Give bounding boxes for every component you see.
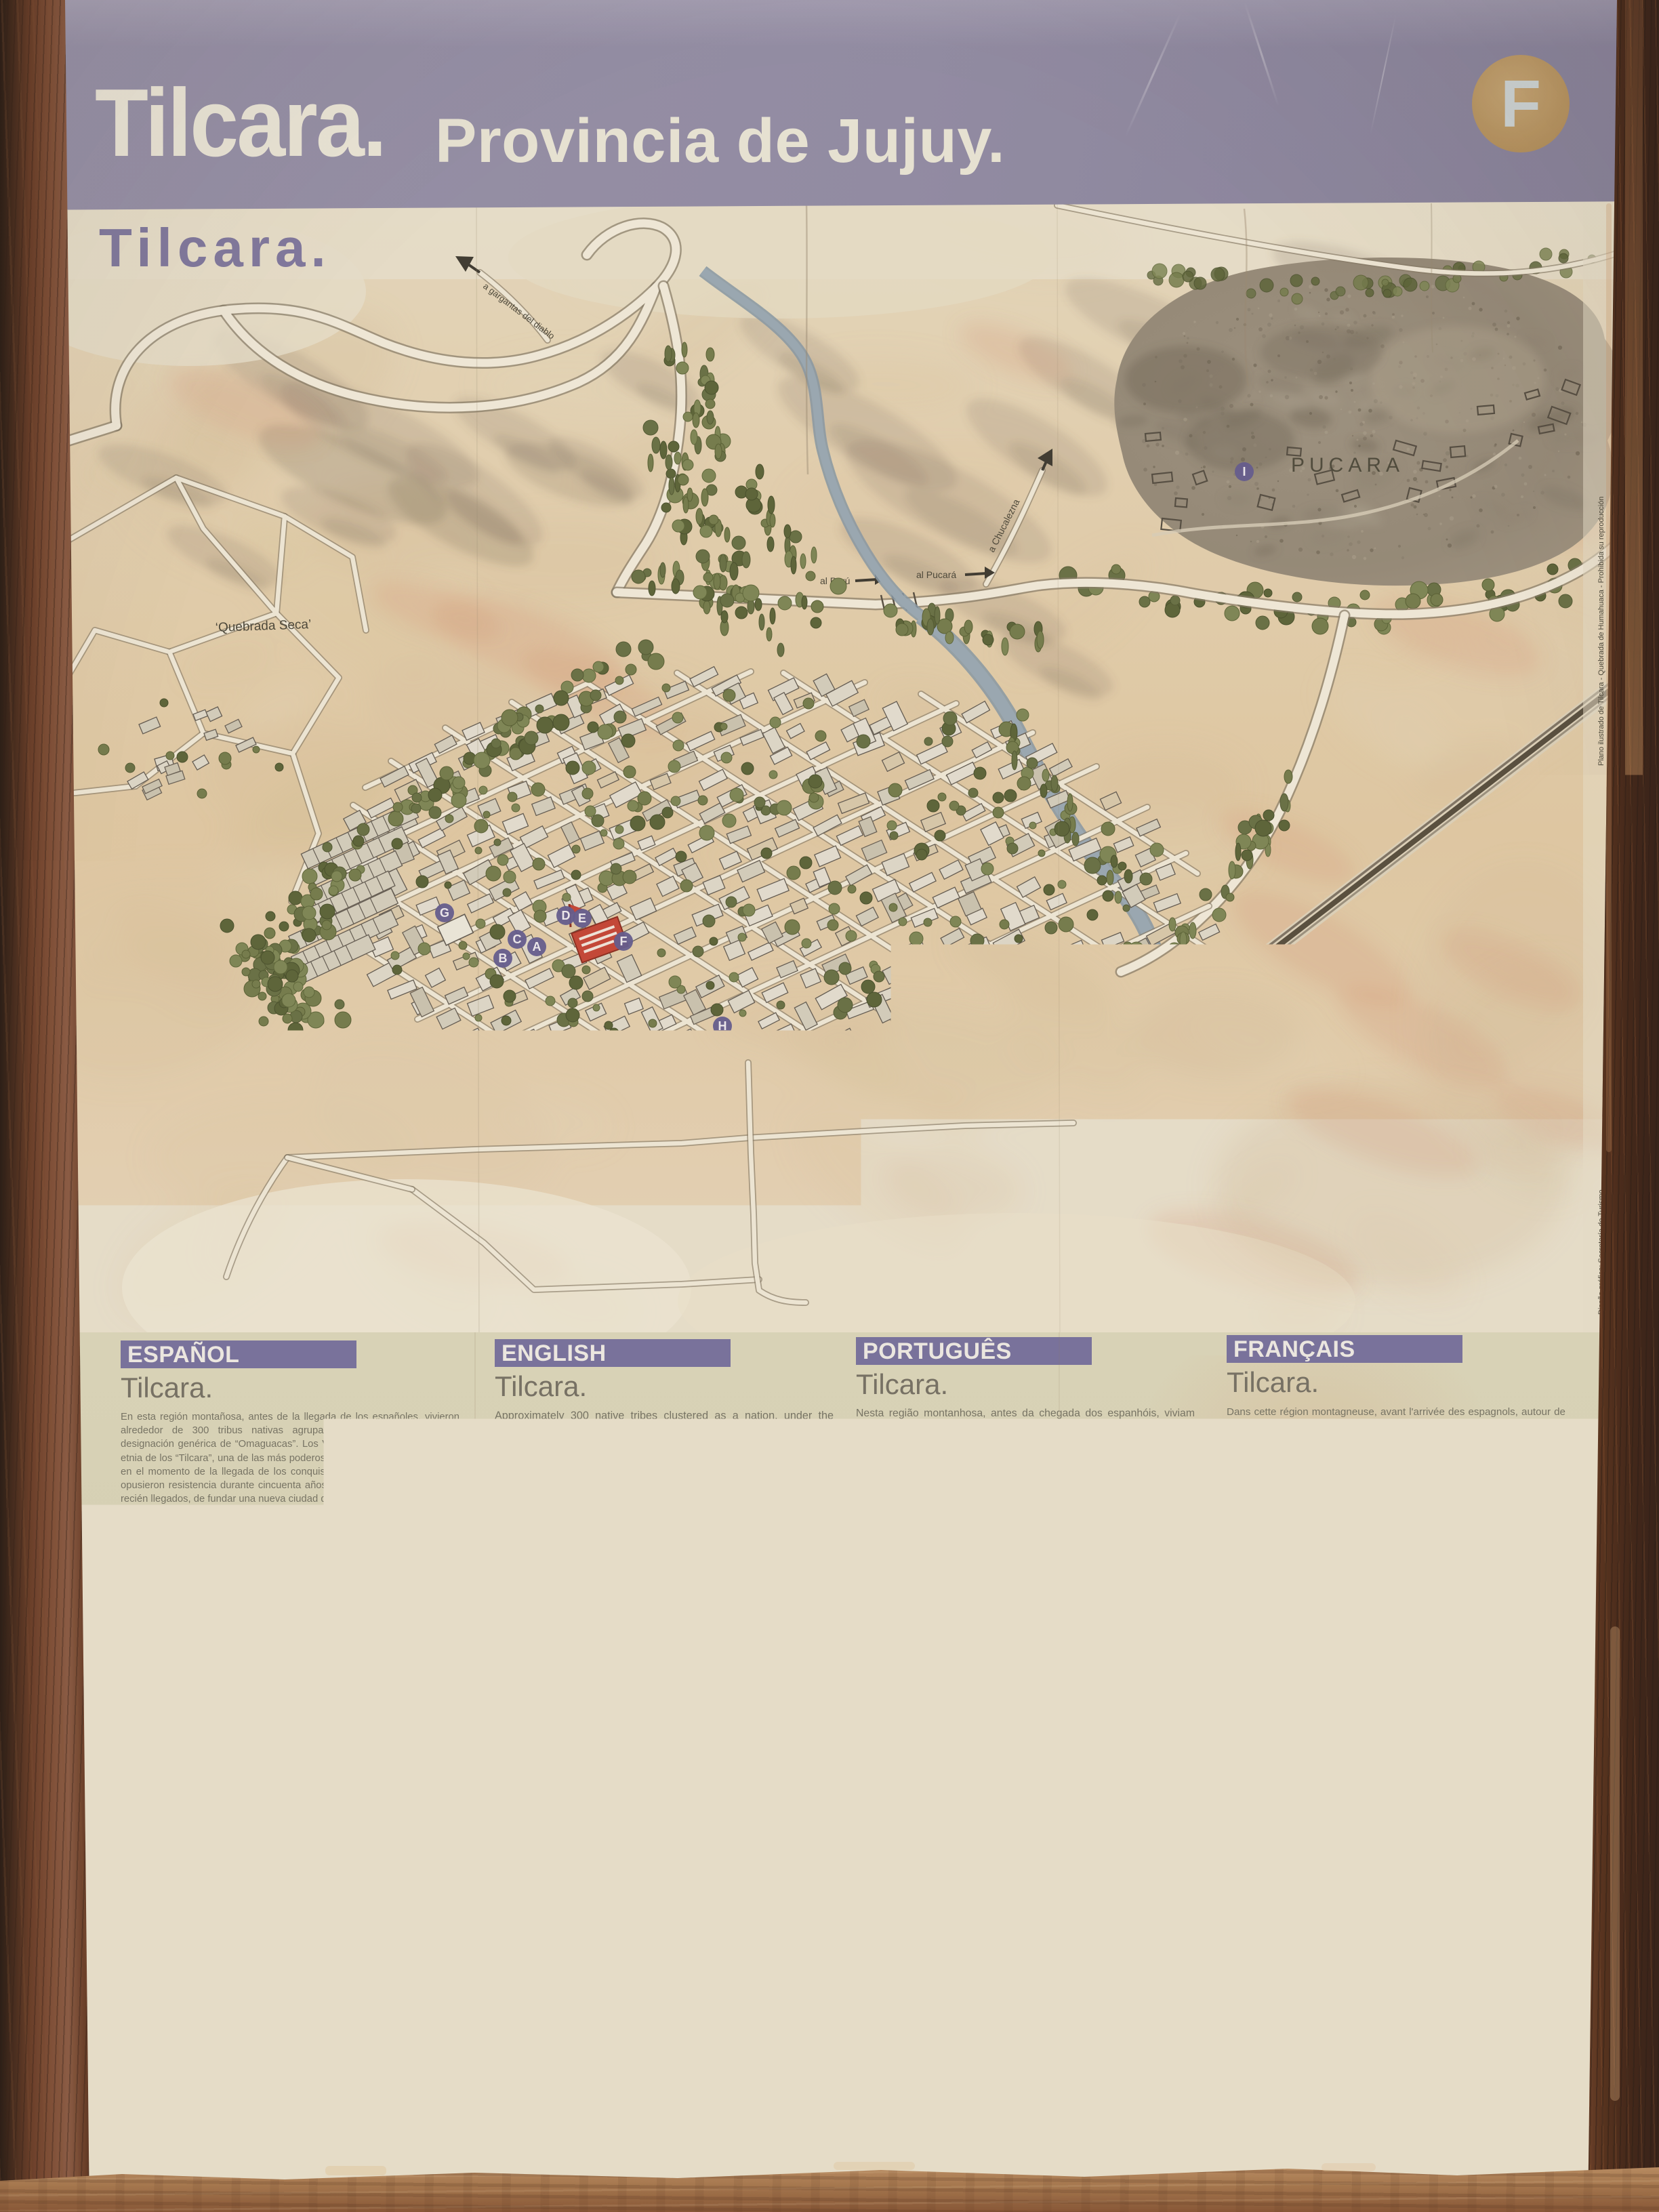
svg-text:H: H	[1233, 1272, 1242, 1285]
svg-text:G: G	[1233, 1252, 1242, 1265]
svg-text:Plano ilustrado de Tilcara - Q: Plano ilustrado de Tilcara - Quebrada de…	[1597, 497, 1605, 766]
svg-text:J: J	[882, 1063, 889, 1077]
svg-text:Estación: Estación	[670, 1281, 695, 1288]
svg-text:J: J	[1234, 1310, 1240, 1323]
svg-text:D: D	[562, 909, 571, 922]
svg-text:al Pucará: al Pucará	[916, 569, 956, 580]
svg-text:I: I	[1242, 465, 1246, 478]
svg-text:H: H	[718, 1019, 727, 1033]
svg-text:Pucara.: Pucara.	[1252, 1290, 1295, 1304]
svg-text:Ferrocarril: Ferrocarril	[670, 1289, 701, 1296]
svg-text:F: F	[620, 935, 628, 948]
svg-text:I: I	[1236, 1291, 1240, 1304]
svg-text:Terminal de Omnibus.: Terminal de Omnibus.	[1252, 1309, 1376, 1323]
svg-text:PUCARA: PUCARA	[1291, 454, 1404, 476]
svg-text:B: B	[499, 951, 508, 965]
svg-text:A: A	[533, 940, 541, 954]
svg-text:C: C	[513, 933, 522, 946]
svg-text:G: G	[440, 906, 449, 920]
svg-text:FFCCGB.: FFCCGB.	[670, 1297, 699, 1305]
svg-text:E: E	[578, 912, 586, 925]
